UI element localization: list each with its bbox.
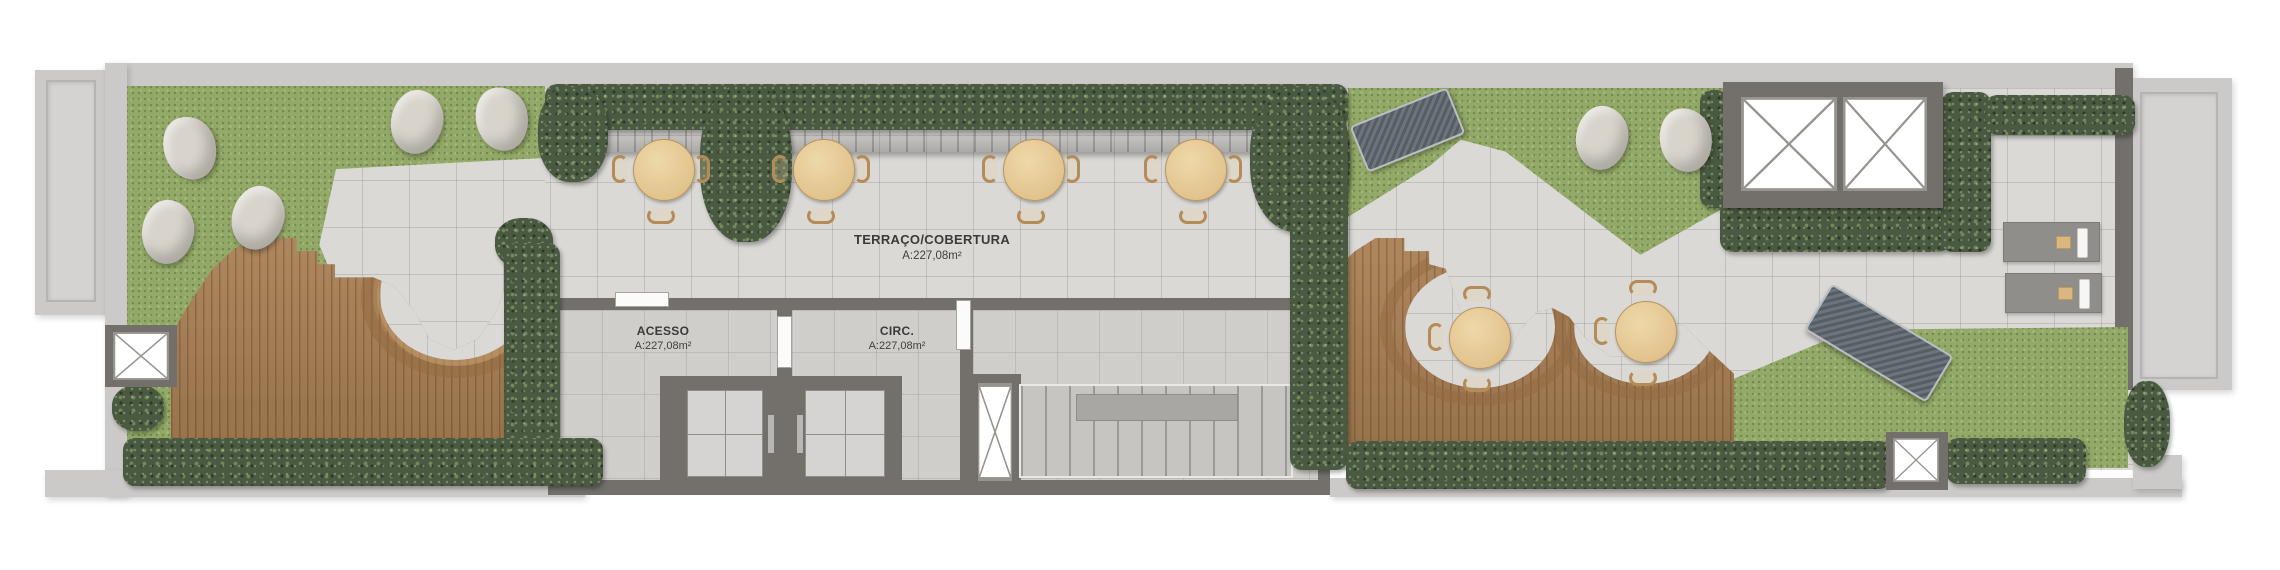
room-area-circ: A:227,08m² bbox=[827, 340, 967, 352]
shaft-x-icon bbox=[1893, 438, 1939, 482]
elevator-1-car bbox=[687, 390, 763, 477]
hedge-skylight-right bbox=[1941, 92, 1991, 252]
dining-chair bbox=[1428, 323, 1444, 351]
stair-landing bbox=[1076, 394, 1238, 421]
dining-chair bbox=[647, 208, 675, 224]
dining-chair bbox=[772, 155, 788, 183]
elevator-cross-line bbox=[845, 391, 846, 476]
dining-chair bbox=[854, 155, 870, 183]
room-area-terraco: A:227,08m² bbox=[812, 250, 1052, 262]
dining-chair bbox=[1463, 286, 1491, 302]
dining-chair bbox=[1064, 155, 1080, 183]
door-acesso-circ bbox=[777, 316, 792, 368]
right-roof-panel bbox=[2140, 92, 2218, 379]
dining-table bbox=[1615, 301, 1677, 363]
room-area-acesso: A:227,08m² bbox=[593, 340, 733, 352]
dining-table bbox=[793, 139, 855, 201]
bush-column-right bbox=[2124, 381, 2170, 467]
dining-chair bbox=[1144, 155, 1160, 183]
hedge-bottom-after-shaft bbox=[1946, 438, 2086, 484]
room-label-terraco: TERRAÇO/COBERTURA bbox=[812, 232, 1052, 247]
dining-chair bbox=[1594, 317, 1610, 345]
dining-chair bbox=[982, 155, 998, 183]
bush-below-left-shaft bbox=[112, 385, 164, 431]
dining-chair bbox=[1179, 208, 1207, 224]
hedge-top-left-bush bbox=[538, 86, 608, 182]
shaft-x-icon bbox=[978, 383, 1012, 481]
dining-chair bbox=[1017, 208, 1045, 224]
roof-opening-icon bbox=[1741, 97, 1837, 191]
dining-table bbox=[633, 139, 695, 201]
dining-chair bbox=[612, 155, 628, 183]
dining-chair bbox=[1463, 376, 1491, 392]
hedge-right-bottom bbox=[1346, 441, 1891, 489]
shaft-x-icon bbox=[113, 332, 169, 380]
hedge-top-right-row bbox=[1985, 95, 2135, 135]
room-label-circ: CIRC. bbox=[827, 324, 967, 338]
roof-opening-icon bbox=[1843, 97, 1927, 191]
lounger-towel bbox=[2056, 236, 2071, 249]
elevator-2-car bbox=[805, 390, 885, 477]
hedge-top-row bbox=[545, 84, 1348, 130]
hedge-right-deck-side bbox=[1290, 125, 1348, 470]
lounger-towel bbox=[2058, 287, 2073, 300]
dining-chair bbox=[1629, 370, 1657, 386]
left-wall-band bbox=[105, 63, 127, 495]
hedge-left-bottom bbox=[123, 438, 603, 486]
dining-chair bbox=[807, 208, 835, 224]
dining-chair bbox=[1629, 280, 1657, 296]
dining-table bbox=[1003, 139, 1065, 201]
sun-lounger bbox=[2005, 273, 2102, 313]
sun-lounger bbox=[2003, 222, 2100, 262]
door-terrace-acesso bbox=[615, 292, 669, 307]
room-label-acesso: ACESSO bbox=[593, 324, 733, 338]
elevator-cross-line bbox=[725, 391, 726, 476]
dining-table bbox=[1165, 139, 1227, 201]
elevator-door-jamb bbox=[768, 415, 774, 453]
lounger-pillow bbox=[2077, 228, 2088, 258]
dining-table bbox=[1449, 307, 1511, 369]
lounger-pillow bbox=[2079, 279, 2090, 309]
left-ledge-panel bbox=[46, 80, 96, 302]
floor-plan-canvas: TERRAÇO/COBERTURA A:227,08m² ACESSO A:22… bbox=[0, 0, 2280, 570]
dining-chair bbox=[694, 155, 710, 183]
elevator-door-jamb bbox=[797, 415, 803, 453]
dining-chair bbox=[1226, 155, 1242, 183]
